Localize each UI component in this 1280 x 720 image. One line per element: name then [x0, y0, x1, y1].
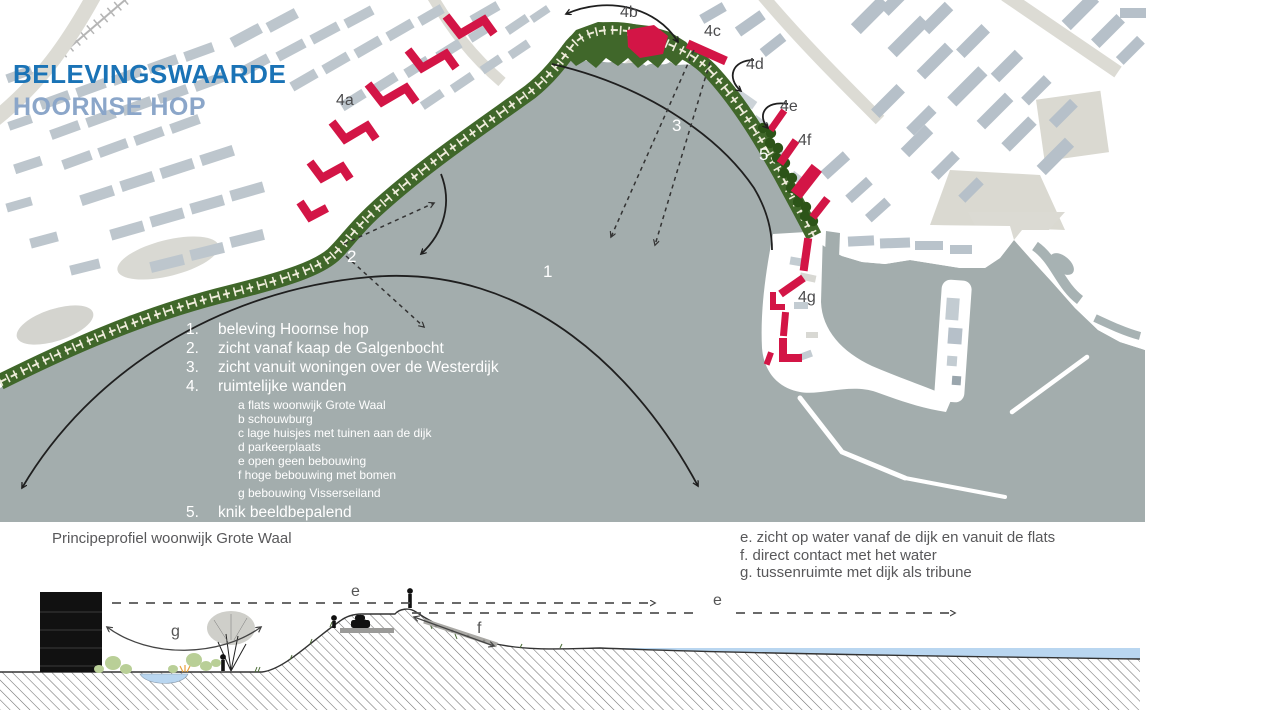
section-notes: e. zicht op water vanaf de dijk en vanui… [740, 529, 1055, 582]
note-f: f. direct contact met het water [740, 547, 1055, 565]
legend: 1. beleving Hoornse hop 2. zicht vanaf k… [186, 320, 546, 522]
legend-item-2: 2. zicht vanaf kaap de Galgenbocht [186, 339, 546, 358]
map-label-4g: 4g [798, 289, 816, 307]
section-caption: Principeprofiel woonwijk Grote Waal [52, 530, 292, 547]
map-label-1: 1 [543, 262, 552, 282]
map-label-4c: 4c [704, 23, 721, 41]
legend-sub-g: g bebouwing Visserseiland [238, 486, 546, 500]
bushes [94, 653, 221, 674]
section-label-f: f [477, 620, 481, 638]
section-canvas [0, 522, 1280, 720]
legend-item-1: 1. beleving Hoornse hop [186, 320, 546, 339]
legend-item-4: 4. ruimtelijke wanden [186, 377, 546, 396]
poster-subtitle: HOORNSE HOP [13, 91, 286, 124]
legend-item-5: 5. knik beeldbepalend [186, 503, 546, 522]
section-label-g: g [171, 623, 180, 641]
legend-sub-c: c lage huisjes met tuinen aan de dijk [238, 426, 546, 440]
map-label-4a: 4a [336, 92, 354, 110]
inner-harbour-inlet [823, 231, 840, 308]
legend-text: knik beeldbepalend [218, 503, 546, 522]
map-label-2: 2 [347, 247, 356, 267]
map-label-4f: 4f [798, 132, 811, 150]
crest-road [340, 628, 394, 633]
note-g: g. tussenruimte met dijk als tribune [740, 564, 1055, 582]
legend-sub-b: b schouwburg [238, 412, 546, 426]
legend-item-3: 3. zicht vanuit woningen over de Westerd… [186, 358, 546, 377]
legend-text: zicht vanuit woningen over de Westerdijk [218, 358, 546, 377]
legend-text: beleving Hoornse hop [218, 320, 546, 339]
legend-sub-f: f hoge bebouwing met bomen [238, 468, 546, 482]
map-label-4b: 4b [620, 4, 638, 22]
legend-text: zicht vanaf kaap de Galgenbocht [218, 339, 546, 358]
section-label-e1: e [351, 583, 360, 601]
map-label-3: 3 [672, 116, 681, 136]
orange-tuft [180, 665, 190, 672]
poster-title: BELEVINGSWAARDE [13, 58, 286, 91]
legend-num: 4. [186, 377, 218, 396]
legend-num: 2. [186, 339, 218, 358]
belevingswaarde-poster: BELEVINGSWAARDE HOORNSE HOP 4a 4b 4c 4d … [0, 0, 1280, 720]
legend-num: 5. [186, 503, 218, 522]
title-block: BELEVINGSWAARDE HOORNSE HOP [13, 58, 286, 124]
map-label-5: 5 [759, 145, 768, 165]
legend-sub-d: d parkeerplaats [238, 440, 546, 454]
note-e: e. zicht op water vanaf de dijk en vanui… [740, 529, 1055, 547]
legend-text: ruimtelijke wanden [218, 377, 546, 396]
legend-num: 3. [186, 358, 218, 377]
legend-sub-a: a flats woonwijk Grote Waal [238, 398, 546, 412]
flat-building [40, 592, 102, 672]
legend-sub-e: e open geen bebouwing [238, 454, 546, 468]
map-label-4e: 4e [780, 98, 798, 116]
section-label-e2: e [713, 592, 722, 610]
legend-subitems: a flats woonwijk Grote Waal b schouwburg… [238, 398, 546, 500]
legend-num: 1. [186, 320, 218, 339]
map-label-4d: 4d [746, 56, 764, 74]
